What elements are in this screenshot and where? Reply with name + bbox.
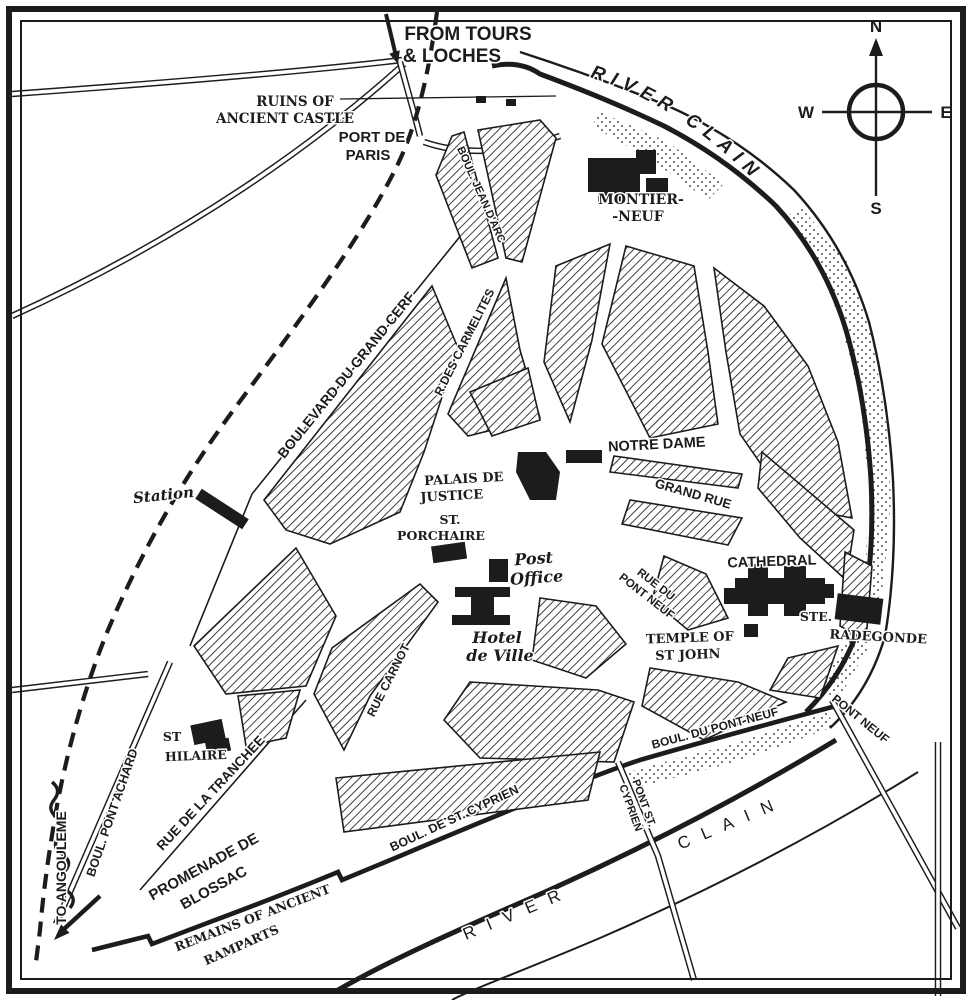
hotel-de-ville-label-line1: Hotel bbox=[471, 628, 521, 647]
ste-radegonde-building bbox=[835, 593, 884, 624]
notre-dame-building bbox=[566, 450, 602, 463]
st-hilaire-label-line1: ST bbox=[163, 729, 182, 744]
temple-of-st-john-building bbox=[744, 624, 758, 637]
compass-west-label: W bbox=[798, 103, 815, 122]
montierneuf-label-line2: -NEUF bbox=[612, 209, 663, 225]
post-office-label-line2: Office bbox=[509, 566, 563, 589]
ruins-label-line1: RUINS OF bbox=[256, 94, 334, 110]
post-office-building bbox=[489, 559, 508, 582]
st-porchaire-label-line2: PORCHAIRE bbox=[397, 528, 485, 543]
compass-east-label: E bbox=[940, 103, 951, 122]
map-of-poitiers: N S W E FROM TOURS & LOCHES RIVER CLAIN … bbox=[0, 0, 972, 1000]
cathedral-label: CATHEDRAL bbox=[727, 552, 817, 571]
compass-north-label: N bbox=[870, 17, 882, 36]
port-de-paris-label-line1: PORT DE bbox=[339, 129, 406, 146]
from-tours-label-line1: FROM TOURS bbox=[404, 24, 531, 45]
castle-ruins-mark-2 bbox=[506, 99, 516, 106]
city-block bbox=[444, 682, 634, 762]
ruins-label-line2: ANCIENT CASTLE bbox=[215, 111, 354, 127]
from-tours-label-line2: & LOCHES bbox=[403, 46, 501, 67]
compass-south-label: S bbox=[870, 199, 881, 218]
temple-label-line2: ST JOHN bbox=[655, 647, 721, 664]
port-de-paris-label-line2: PARIS bbox=[346, 147, 391, 164]
hotel-de-ville-label-line2: de Ville bbox=[466, 646, 533, 665]
to-angouleme-label: TO ANGOULEME bbox=[53, 811, 69, 925]
montierneuf-label-line1: MONTIER- bbox=[598, 192, 684, 208]
post-office-label-line1: Post bbox=[513, 548, 555, 570]
st-porchaire-label-line1: ST. bbox=[439, 512, 460, 527]
st-hilaire-label-line2: HILAIRE bbox=[165, 747, 227, 764]
map-canvas: N S W E FROM TOURS & LOCHES RIVER CLAIN … bbox=[0, 0, 972, 1000]
temple-label-line1: TEMPLE OF bbox=[646, 629, 735, 647]
ste-radegonde-label-line1: STE. bbox=[800, 609, 832, 624]
